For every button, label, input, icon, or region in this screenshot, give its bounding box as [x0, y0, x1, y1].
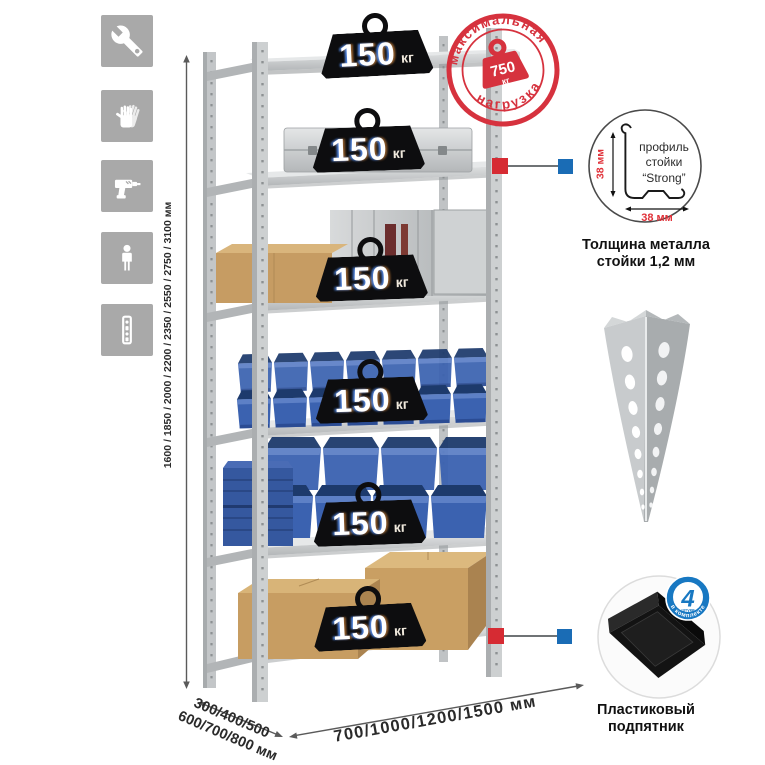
height-dimension-label: 1600 / 1850 / 2000 / 2200 / 2350 / 2550 … — [162, 201, 174, 468]
max-load-stamp: максимальная нагрузка 750 кг — [443, 10, 563, 130]
weight-badge: 150кг — [314, 357, 428, 424]
badge-unit: кг — [394, 520, 407, 534]
badge-unit: кг — [396, 275, 409, 289]
profile-label-2: стойки — [646, 155, 683, 169]
weight-badge: 150кг — [318, 10, 433, 79]
badge-unit: кг — [401, 50, 415, 65]
gloves-icon — [101, 90, 153, 142]
badge-value: 150 — [332, 506, 389, 540]
rack-upright-glyph — [110, 313, 144, 347]
rack-upright-icon — [101, 304, 153, 356]
person-glyph — [110, 241, 144, 275]
gloves-glyph — [110, 99, 144, 133]
foot-circle: 4 штуки в комплекте — [596, 572, 728, 704]
badge-value: 150 — [332, 610, 390, 645]
badge-value: 150 — [334, 261, 391, 295]
infographic-stage: 150кг 150кг 150кг 150кг 150кг 150кг макс… — [0, 0, 765, 765]
weight-badge: 150кг — [311, 106, 425, 173]
profile-caption-line2: стойки 1,2 мм — [571, 254, 721, 271]
foot-caption: Пластиковый подпятник — [571, 702, 721, 736]
profile-label-3: “Strong” — [642, 171, 685, 185]
profile-caption-line1: Толщина металла — [571, 237, 721, 254]
foot-caption-line2: подпятник — [571, 719, 721, 736]
weight-badge: 150кг — [312, 480, 426, 547]
weight-badge: 150кг — [311, 583, 426, 652]
foot-badge-unit: штуки — [681, 608, 695, 613]
profile-horizontal-dim: 38 мм — [641, 212, 673, 224]
badge-value: 150 — [339, 37, 397, 72]
profile-section-circle: 38 мм 38 мм профиль стойки “Strong” — [586, 107, 704, 225]
profile-vertical-dim: 38 мм — [595, 149, 607, 179]
weight-badge: 150кг — [314, 235, 428, 302]
profile-caption: Толщина металла стойки 1,2 мм — [571, 237, 721, 271]
wrench-icon — [101, 15, 153, 67]
badge-unit: кг — [393, 146, 406, 160]
badge-unit: кг — [396, 397, 409, 411]
badge-unit: кг — [394, 623, 408, 638]
drill-glyph — [110, 169, 144, 203]
wrench-glyph — [110, 24, 144, 58]
foot-caption-line1: Пластиковый — [571, 702, 721, 719]
person-icon — [101, 232, 153, 284]
badge-value: 150 — [334, 383, 391, 417]
upright-profile-image — [594, 302, 698, 530]
badge-value: 150 — [331, 132, 388, 166]
foot-count-badge: 4 штуки в комплекте — [666, 576, 710, 620]
drill-icon — [101, 160, 153, 212]
profile-label-1: профиль — [639, 140, 689, 154]
